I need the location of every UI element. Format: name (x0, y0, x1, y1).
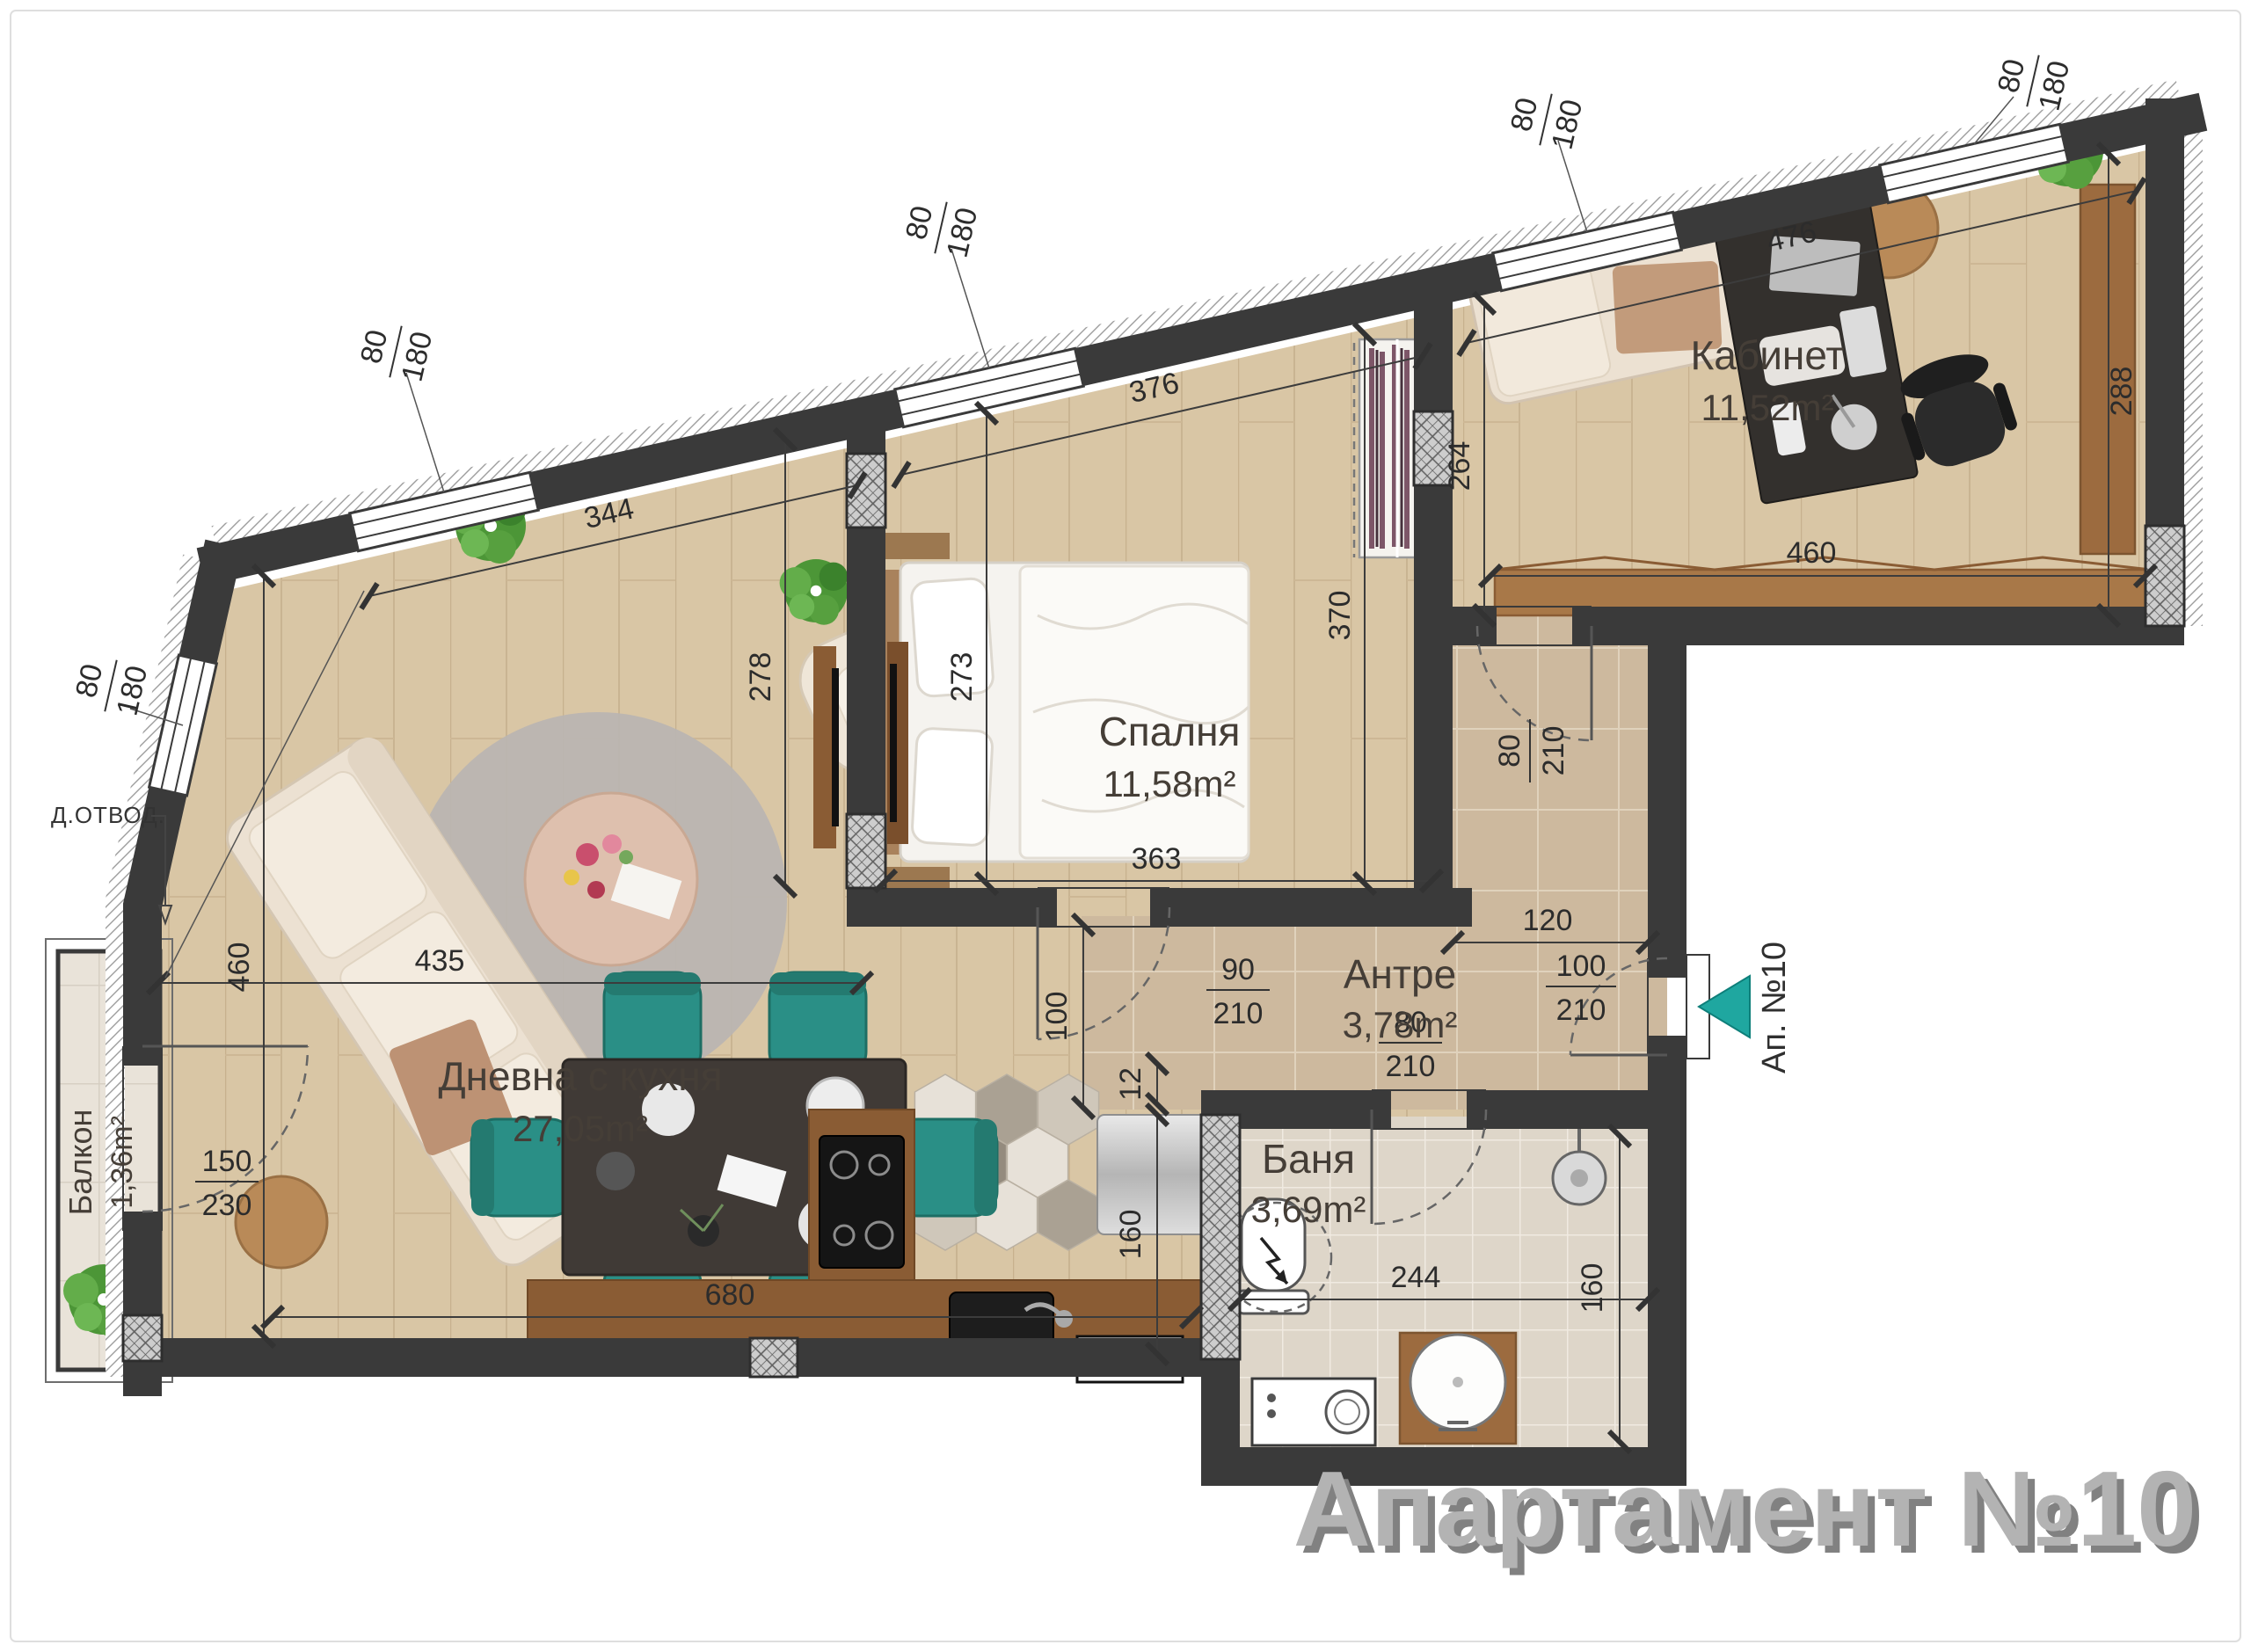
dim-office-width: 460 (1787, 536, 1837, 570)
bath-sink (1400, 1333, 1516, 1444)
living-tv-console (813, 646, 839, 848)
svg-text:Д.ОТВОД.: Д.ОТВОД. (51, 802, 165, 828)
hall-area: 3,78m² (1343, 1004, 1458, 1045)
entrance-label: Ап. №10 (1756, 942, 1793, 1073)
dim-living-diag: 435 (415, 944, 465, 978)
dim-bedroom-right: 370 (1323, 591, 1357, 641)
dim-bath-width: 244 (1391, 1261, 1441, 1294)
floorplan-page: Ап. №10 344 376 476 435 460 278 273 363 … (0, 0, 2251, 1652)
balcony-area: 1,36m² (106, 1116, 139, 1209)
bath-label: Баня (1262, 1136, 1355, 1182)
dim-hall-width: 120 (1523, 904, 1573, 937)
dim-office-left: 264 (1443, 441, 1476, 491)
dim-kitchen-gap: 12 (1114, 1067, 1147, 1101)
dim-kitchen-depth: 160 (1114, 1210, 1147, 1260)
svg-text:230: 230 (202, 1189, 252, 1222)
office-area: 11,52m² (1701, 387, 1834, 428)
dim-living-bottom: 680 (705, 1278, 755, 1312)
balcony-label: Балкон (62, 1110, 98, 1216)
dim-tv-wall: 278 (744, 652, 777, 702)
dim-hall-opening: 100 (1040, 992, 1074, 1042)
svg-text:150: 150 (202, 1145, 252, 1178)
svg-text:210: 210 (1386, 1050, 1436, 1083)
dim-office-right: 288 (2105, 367, 2138, 417)
living-label: Дневна с кухня (438, 1053, 722, 1099)
dim-bath-depth: 160 (1576, 1263, 1609, 1314)
dim-living-height: 460 (222, 942, 256, 993)
dim-bedroom-depth: 273 (945, 652, 979, 702)
bath-area: 3,69m² (1251, 1189, 1366, 1230)
bedroom-tv-console (887, 642, 908, 844)
bedroom-area: 11,58m² (1104, 763, 1236, 804)
hall-label: Антре (1344, 951, 1456, 997)
office-label: Кабинет (1691, 332, 1845, 378)
svg-text:210: 210 (1213, 997, 1264, 1030)
bedroom-label: Спалня (1099, 709, 1241, 754)
svg-text:90: 90 (1221, 953, 1255, 986)
coffee-table (525, 793, 697, 965)
svg-text:210: 210 (1556, 993, 1606, 1027)
living-area: 27,05m² (513, 1108, 648, 1149)
cooktop (820, 1136, 904, 1268)
apartment-title: Апартамент №10 (1293, 1449, 2196, 1568)
svg-text:210: 210 (1537, 726, 1570, 776)
svg-text:100: 100 (1556, 950, 1606, 983)
dim-bedroom-width: 363 (1132, 842, 1182, 876)
washing-machine (1252, 1379, 1375, 1445)
svg-text:80: 80 (1493, 734, 1526, 768)
